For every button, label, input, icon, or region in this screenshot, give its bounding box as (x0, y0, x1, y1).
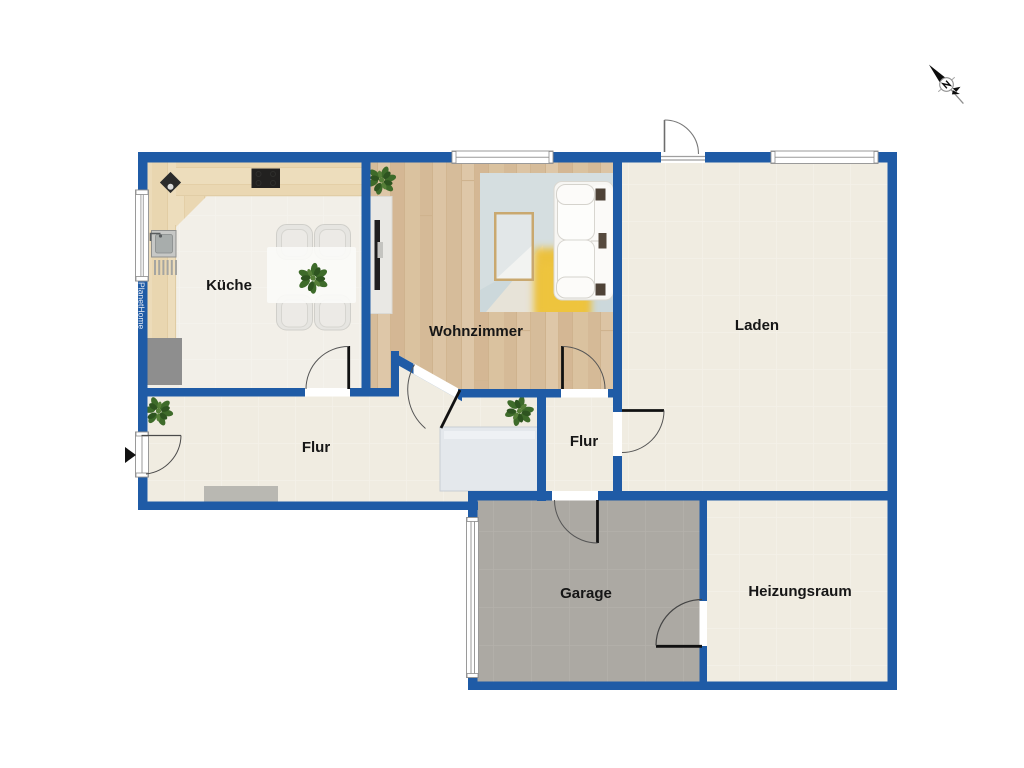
svg-text:Wohnzimmer: Wohnzimmer (429, 323, 523, 340)
svg-text:Heizungsraum: Heizungsraum (748, 583, 851, 600)
svg-text:PlanetHome: PlanetHome (137, 282, 147, 330)
svg-text:Küche: Küche (206, 277, 252, 294)
svg-text:Laden: Laden (735, 317, 779, 334)
svg-text:Flur: Flur (570, 433, 598, 450)
svg-text:Garage: Garage (560, 585, 612, 602)
svg-text:Flur: Flur (302, 439, 330, 456)
